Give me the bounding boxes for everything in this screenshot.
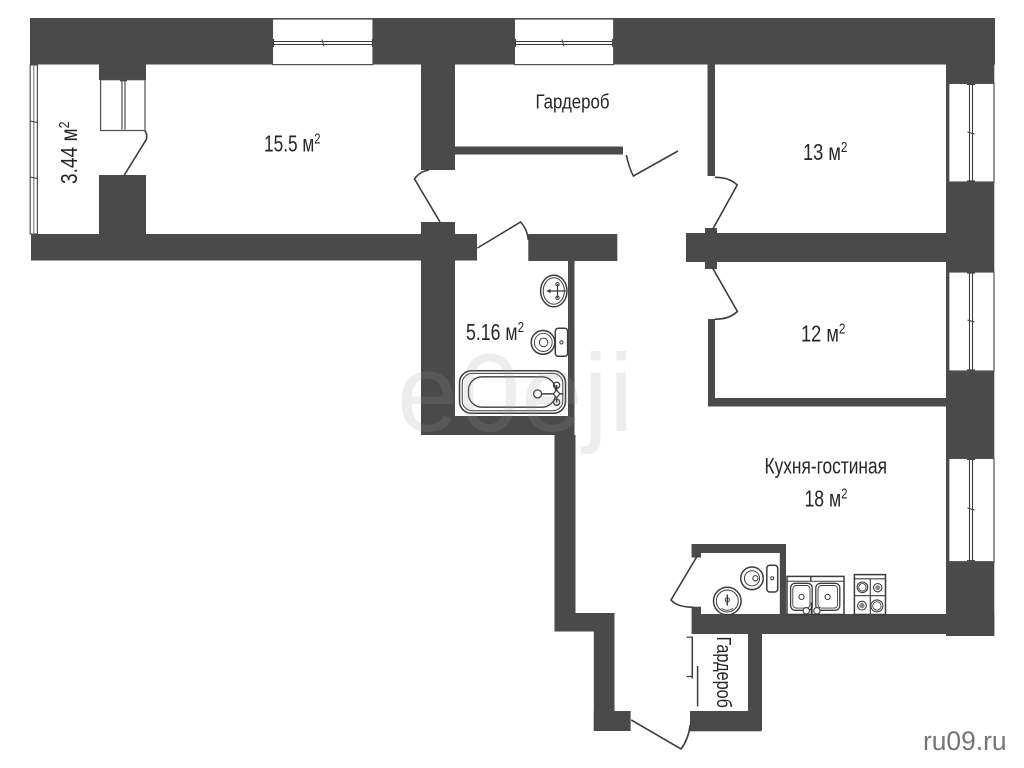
svg-text:Гардероб: Гардероб — [712, 637, 735, 709]
svg-text:15.5 м2: 15.5 м2 — [264, 130, 321, 156]
svg-text:ru09.ru: ru09.ru — [923, 726, 1007, 756]
svg-text:е0еjі: е0еjі — [397, 332, 634, 455]
svg-text:13 м2: 13 м2 — [803, 139, 848, 165]
svg-text:Гардероб: Гардероб — [536, 91, 610, 114]
svg-text:18 м2: 18 м2 — [805, 486, 848, 512]
svg-text:3.44 м2: 3.44 м2 — [56, 122, 82, 185]
svg-text:12 м2: 12 м2 — [801, 321, 846, 347]
svg-text:Кухня-гостиная: Кухня-гостиная — [765, 454, 888, 479]
